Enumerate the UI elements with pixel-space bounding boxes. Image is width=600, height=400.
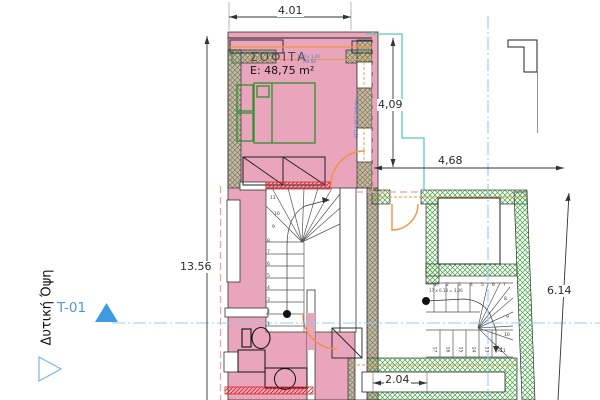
tread-number: 11 xyxy=(270,196,276,201)
tread-number: 1 xyxy=(267,322,270,327)
tread-number: 6 xyxy=(492,283,495,288)
room-area-label: E: 48,75 m² xyxy=(250,64,314,77)
floor-plan-canvas: 4.01 13.56 4,09 4,68 6.14 2.04 ΣΟΦΙΤΑ E:… xyxy=(0,0,600,400)
elevation-marker-filled-triangle xyxy=(95,303,118,322)
tread-number: 5 xyxy=(481,283,484,288)
tread-number: 10 xyxy=(274,212,280,217)
tread-number: 2 xyxy=(267,310,270,315)
window-right-upper xyxy=(357,62,372,88)
door-opening xyxy=(307,313,315,350)
section-tag-label: T-01 xyxy=(57,300,86,316)
tread-number: 13 xyxy=(483,347,488,353)
window-tag-right: ΠΘ-001 1,00 x 1,20 xyxy=(353,99,358,149)
tread-number: 4 xyxy=(470,283,473,288)
dim-upper-right: 4,09 xyxy=(377,99,404,111)
tread-number: 9 xyxy=(506,315,509,320)
door-arc-corridor xyxy=(392,204,418,230)
window-left-upper xyxy=(227,200,240,282)
stair-walkline-start-dot xyxy=(283,310,291,318)
stair-note-label: 17 x 0,18 = 3,06 xyxy=(429,288,463,293)
tread-number: 16 xyxy=(444,347,449,353)
dim-left: 13.56 xyxy=(179,261,213,273)
tread-number: 10 xyxy=(504,333,510,338)
dim-mid-right: 4,68 xyxy=(437,155,464,167)
neighbor-room xyxy=(438,198,500,264)
elevation-name-label: Δυτική Όψη xyxy=(40,243,55,373)
tread-number: 6 xyxy=(267,262,270,267)
dim-far-right: 6.14 xyxy=(546,285,573,297)
tread-number: 3 xyxy=(458,283,461,288)
tread-number: 17 xyxy=(431,347,436,353)
dim-top: 4.01 xyxy=(277,5,304,17)
tread-number: 1 xyxy=(434,283,437,288)
tread-number: 4 xyxy=(267,286,270,291)
tread-number: 8 xyxy=(267,239,270,244)
tread-number: 2 xyxy=(446,283,449,288)
tread-number: 7 xyxy=(267,250,270,255)
tread-number: 9 xyxy=(272,225,275,230)
neighbor-building-outline xyxy=(508,40,538,133)
tread-number: 12 xyxy=(496,347,501,353)
window-tag-top-2: ΠΘ-00 xyxy=(303,60,316,65)
tread-number: 3 xyxy=(267,298,270,303)
tread-number: 8 xyxy=(504,297,507,302)
dim-bottom: 2.04 xyxy=(384,374,411,386)
tread-number: 14 xyxy=(470,347,475,353)
window-left-lower xyxy=(224,352,238,372)
tread-number: 15 xyxy=(457,347,462,353)
stair-walkline-start-dot xyxy=(422,297,430,305)
tread-number: 7 xyxy=(503,283,506,288)
window-right-mid xyxy=(357,128,372,162)
tread-number: 5 xyxy=(267,274,270,279)
